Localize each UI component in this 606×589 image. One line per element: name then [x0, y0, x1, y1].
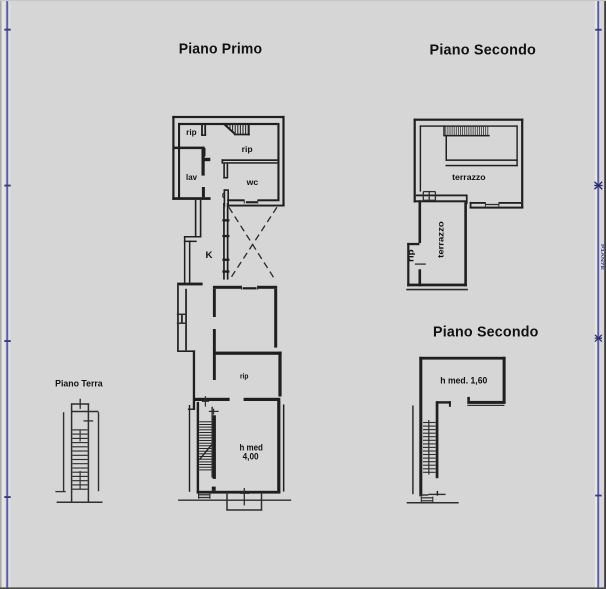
svg-text:rip: rip	[186, 128, 197, 137]
svg-text:h med. 1,60: h med. 1,60	[440, 375, 487, 386]
svg-text:4,00: 4,00	[243, 451, 259, 461]
svg-text:terrazzo: terrazzo	[436, 221, 446, 258]
svg-text:lav: lav	[186, 173, 198, 182]
svg-text:Piano Secondo: Piano Secondo	[433, 324, 539, 341]
svg-text:wc: wc	[246, 178, 259, 187]
svg-text:Piano Primo: Piano Primo	[179, 40, 263, 57]
svg-text:rip: rip	[240, 371, 249, 380]
svg-text:terrazzo: terrazzo	[452, 172, 486, 182]
svg-text:rip: rip	[406, 249, 415, 262]
svg-text:Piano Secondo: Piano Secondo	[430, 41, 537, 58]
svg-text:rip: rip	[242, 145, 253, 154]
svg-text:P1AN7E: P1AN7E	[600, 244, 605, 270]
svg-text:K: K	[206, 250, 214, 260]
svg-text:Piano Terra: Piano Terra	[55, 378, 103, 389]
